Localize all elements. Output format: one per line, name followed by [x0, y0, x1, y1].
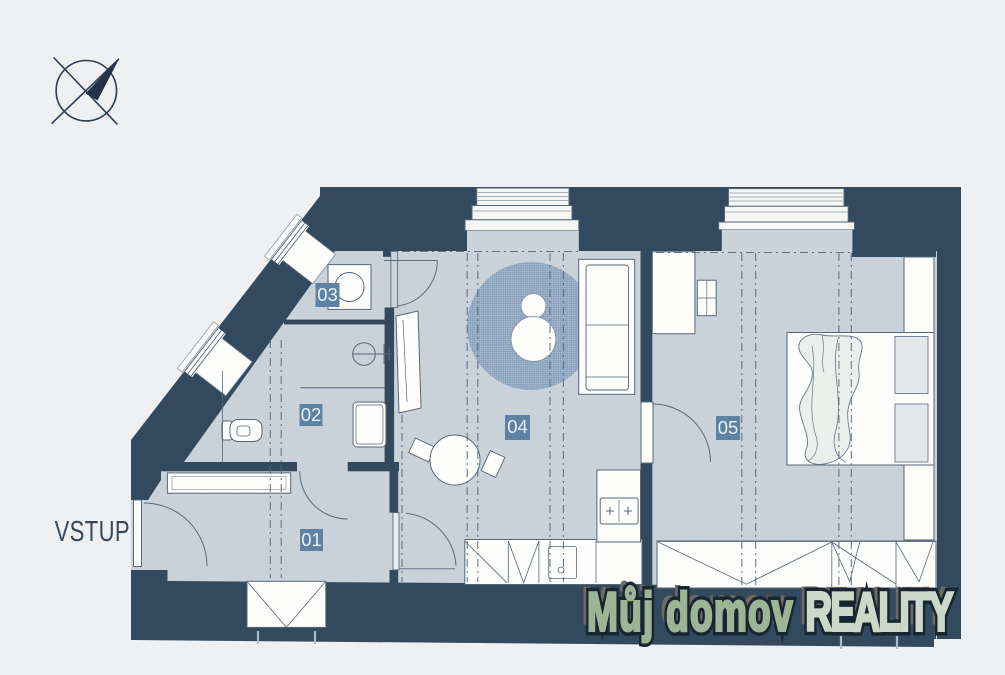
- svg-text:05: 05: [718, 417, 739, 438]
- svg-text:03: 03: [317, 284, 338, 305]
- svg-text:01: 01: [301, 529, 322, 550]
- svg-text:02: 02: [301, 404, 322, 425]
- svg-text:VSTUP: VSTUP: [55, 516, 130, 548]
- svg-text:04: 04: [507, 416, 528, 437]
- svg-text:Můj domov REALITY: Můj domov REALITY: [587, 581, 953, 642]
